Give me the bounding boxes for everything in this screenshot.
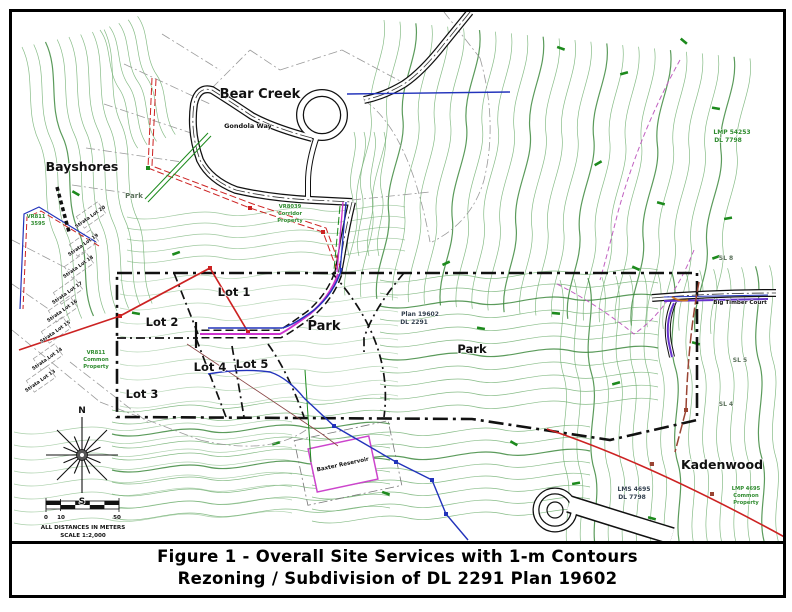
scale-note-1: ALL DISTANCES IN METERS xyxy=(41,525,126,531)
figure-title: Figure 1 - Overall Site Services with 1-… xyxy=(12,546,783,568)
label-bayshores: Bayshores xyxy=(46,159,119,174)
label-lmp54253-1: LMP 54253 xyxy=(713,129,750,136)
label-vr811-common-2: Common xyxy=(83,357,109,363)
label-sl5: SL 5 xyxy=(733,357,747,364)
compass-north-label: N xyxy=(78,406,86,416)
label-lmp-common-3: Property xyxy=(733,500,759,506)
label-bear-creek: Bear Creek xyxy=(220,87,301,102)
label-lmp-common-1: LMP 4695 xyxy=(732,486,761,492)
label-strata-lot-20: Strata Lot 20 xyxy=(74,204,107,230)
label-corridor-2: Corridor xyxy=(278,211,303,217)
label-strata-lot-15: Strata Lot 15 xyxy=(39,320,72,345)
label-vr811-plan-1: VR811 xyxy=(27,214,46,220)
label-corridor-1: VR8039 xyxy=(279,204,302,210)
label-lot-1: Lot 1 xyxy=(218,285,251,299)
figure-page: Bear Creek Gondola Way Bayshores Park VR… xyxy=(0,0,792,612)
label-big-timber-court: Big Timber Court xyxy=(713,300,767,306)
site-map: Bear Creek Gondola Way Bayshores Park VR… xyxy=(12,12,783,541)
label-park-east: Park xyxy=(457,342,487,356)
label-kadenwood: Kadenwood xyxy=(681,457,763,472)
label-strata-lot-14: Strata Lot 14 xyxy=(31,346,64,372)
label-vr811-common-3: Property xyxy=(83,364,109,370)
label-strata-lot-17: Strata Lot 17 xyxy=(51,281,84,306)
label-lot-2: Lot 2 xyxy=(146,315,179,329)
label-corridor-3: Property xyxy=(277,218,303,224)
label-sl4: SL 4 xyxy=(719,401,733,408)
map-area: Bear Creek Gondola Way Bayshores Park VR… xyxy=(12,12,783,541)
label-strata-lot-18: Strata Lot 18 xyxy=(62,254,95,280)
label-vr811-common-1: VR811 xyxy=(87,350,106,356)
label-strata-lot-13: Strata Lot 13 xyxy=(24,369,57,394)
label-lms4695-1: LMS 4695 xyxy=(618,486,651,493)
scale-tick-0: 0 xyxy=(44,515,48,521)
label-lms4695-2: DL 7798 xyxy=(618,494,646,501)
scale-tick-10: 10 xyxy=(57,515,65,521)
figure-subtitle: Rezoning / Subdivision of DL 2291 Plan 1… xyxy=(12,568,783,590)
label-vr811-plan-2: 3595 xyxy=(31,221,46,227)
label-lot-3: Lot 3 xyxy=(126,387,159,401)
label-gondola-way: Gondola Way xyxy=(224,122,273,130)
scale-tick-50: 50 xyxy=(113,515,121,521)
label-plan-1: Plan 19602 xyxy=(401,311,439,318)
label-lmp54253-2: DL 7798 xyxy=(714,137,742,144)
label-lot-4: Lot 4 xyxy=(194,360,227,374)
label-lmp-common-2: Common xyxy=(733,493,759,499)
label-lot-5: Lot 5 xyxy=(236,357,269,371)
label-park-center: Park xyxy=(307,319,340,334)
label-plan-2: DL 2291 xyxy=(400,319,428,326)
scale-note-2: SCALE 1:2,000 xyxy=(60,533,106,539)
label-sl8: SL 8 xyxy=(719,255,733,262)
compass-south-label: S xyxy=(79,497,85,507)
map-frame: Bear Creek Gondola Way Bayshores Park VR… xyxy=(9,9,786,598)
title-block: Figure 1 - Overall Site Services with 1-… xyxy=(12,541,783,592)
label-park-nw: Park xyxy=(125,192,143,200)
